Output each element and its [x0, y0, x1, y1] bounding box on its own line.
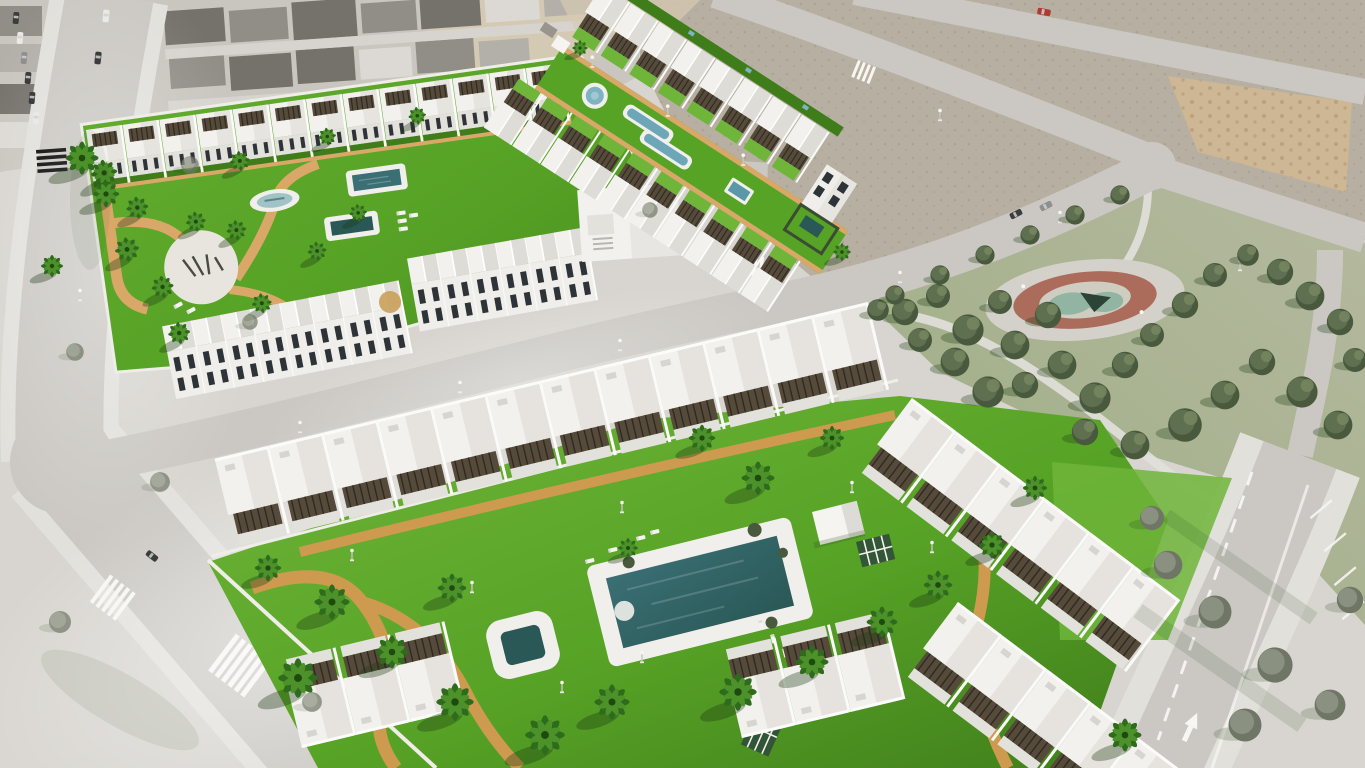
autumn-tree — [379, 291, 401, 313]
aerial-render-scene — [0, 0, 1365, 768]
scene-canvas — [0, 0, 1365, 768]
